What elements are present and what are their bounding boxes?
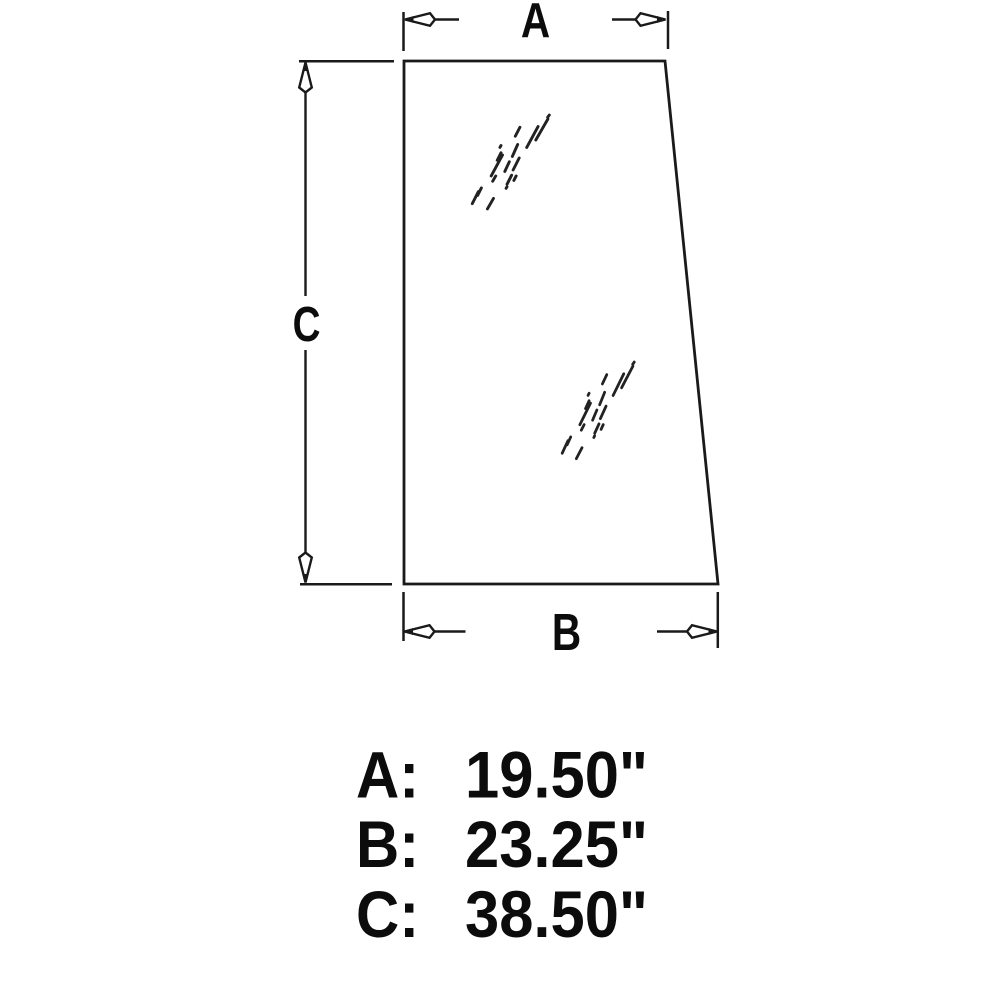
svg-text:38.50": 38.50" [465, 877, 648, 951]
svg-text:B:: B: [356, 808, 419, 881]
svg-text:19.50": 19.50" [465, 737, 648, 811]
svg-text:B: B [552, 603, 581, 661]
svg-text:23.25": 23.25" [465, 807, 648, 881]
svg-text:C: C [293, 298, 321, 353]
svg-text:C:: C: [356, 878, 419, 951]
svg-text:A:: A: [356, 739, 419, 812]
svg-text:A: A [521, 0, 550, 48]
